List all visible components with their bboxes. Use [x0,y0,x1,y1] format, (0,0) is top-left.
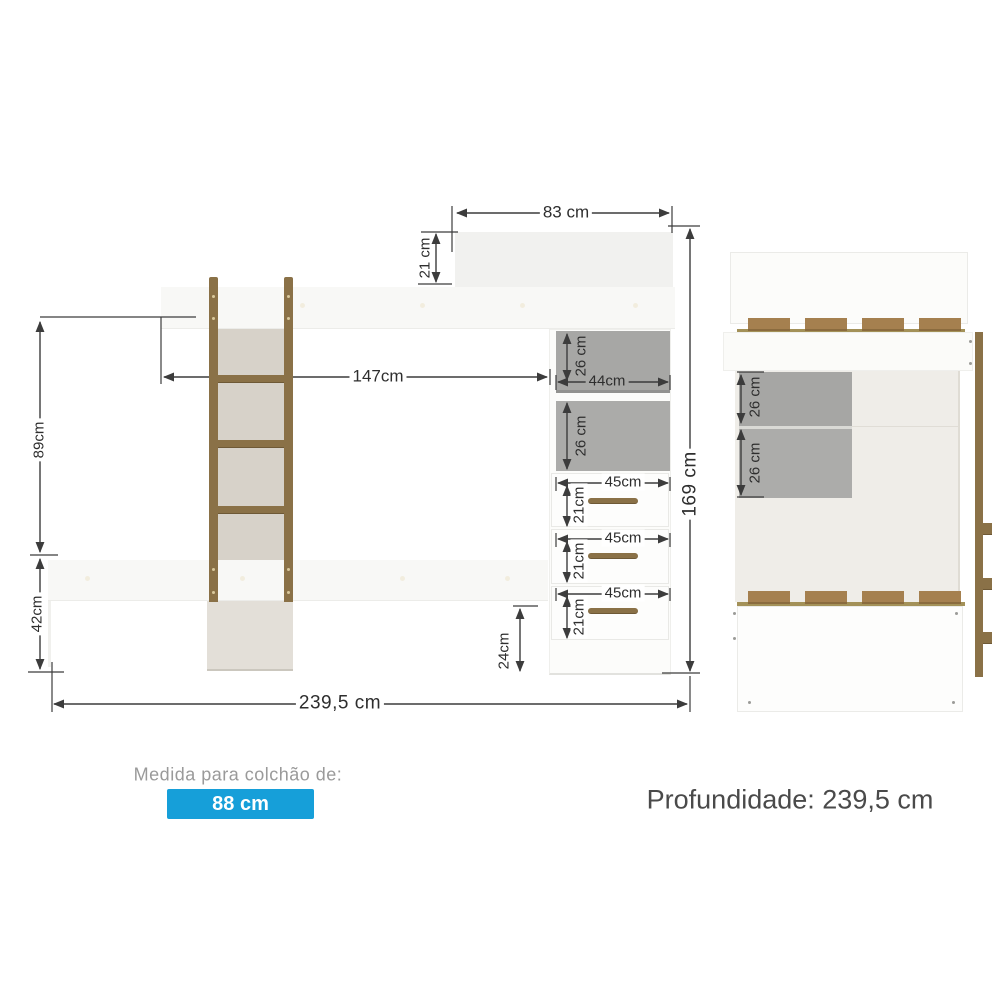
dim-extension-lines [28,206,764,712]
dimension-lines [0,0,1000,1000]
dim-arrow-lines [40,213,741,704]
diagram-canvas: 83 cm 21 cm 147cm 89cm 42cm 239,5 cm 169… [0,0,1000,1000]
